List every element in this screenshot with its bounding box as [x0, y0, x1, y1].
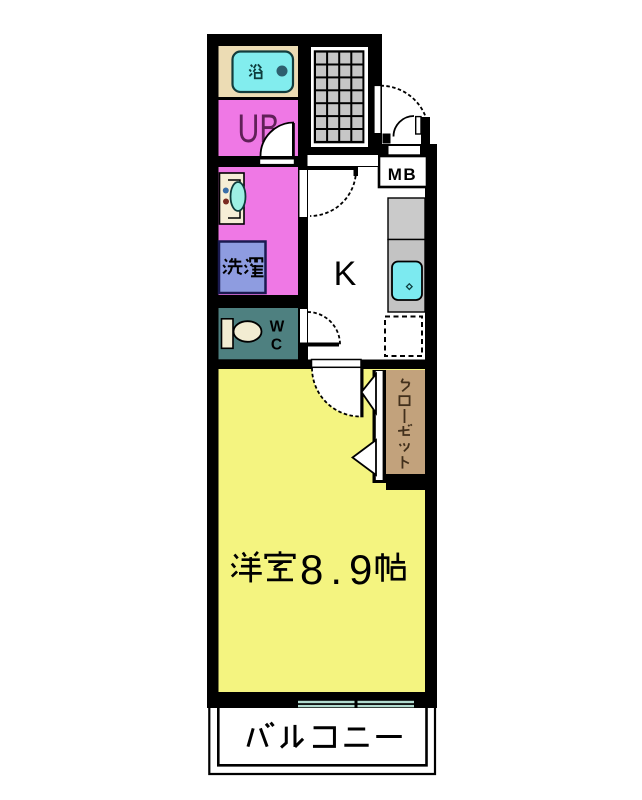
svg-text:W: W: [270, 319, 285, 336]
svg-text:K: K: [334, 255, 357, 293]
svg-text:8.9: 8.9: [300, 546, 379, 593]
svg-text:MB: MB: [388, 165, 417, 184]
svg-text:C: C: [271, 337, 282, 354]
